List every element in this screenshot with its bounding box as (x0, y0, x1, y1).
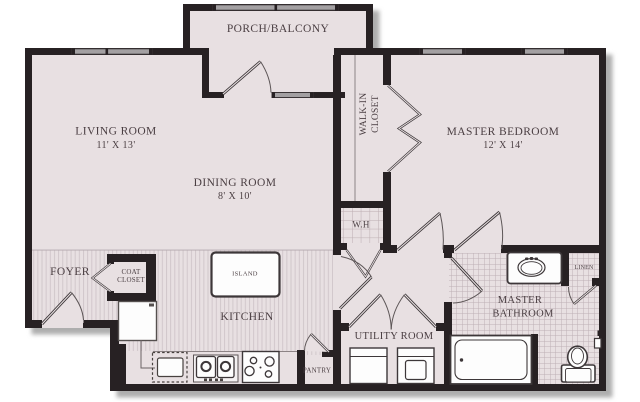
svg-text:PANTRY: PANTRY (303, 367, 331, 375)
svg-text:UTILITY ROOM: UTILITY ROOM (355, 331, 434, 342)
svg-text:12' X 14': 12' X 14' (483, 140, 522, 151)
svg-text:11' X 13': 11' X 13' (96, 140, 135, 151)
svg-text:WALK-IN: WALK-IN (359, 93, 369, 136)
svg-text:LIVING ROOM: LIVING ROOM (75, 126, 156, 138)
svg-text:ISLAND: ISLAND (232, 271, 258, 278)
svg-text:COAT: COAT (121, 268, 141, 276)
svg-text:BATHROOM: BATHROOM (492, 309, 554, 320)
svg-text:KITCHEN: KITCHEN (220, 311, 274, 323)
svg-text:W.H: W.H (352, 220, 370, 230)
svg-text:FOYER: FOYER (50, 266, 90, 278)
svg-text:CLOSET: CLOSET (117, 276, 145, 284)
svg-text:MASTER BEDROOM: MASTER BEDROOM (447, 126, 560, 138)
svg-text:MASTER: MASTER (498, 295, 542, 306)
svg-text:CLOSET: CLOSET (371, 95, 381, 133)
svg-text:8' X 10': 8' X 10' (218, 191, 252, 202)
svg-text:LINEN: LINEN (575, 265, 594, 271)
svg-text:PORCH/BALCONY: PORCH/BALCONY (227, 23, 330, 35)
svg-text:DINING ROOM: DINING ROOM (194, 177, 277, 189)
